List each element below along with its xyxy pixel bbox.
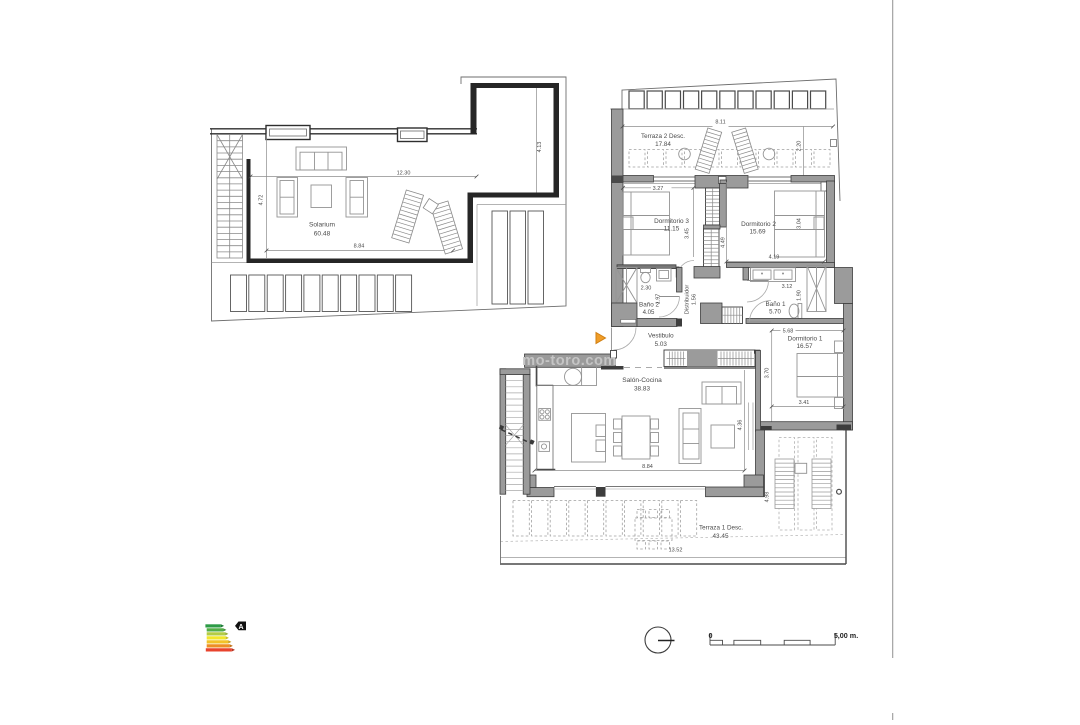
svg-text:5.03: 5.03 [655,341,668,348]
svg-text:15.69: 15.69 [750,229,766,236]
svg-text:5.70: 5.70 [769,309,781,316]
svg-text:mo-toro.com: mo-toro.com [522,353,617,369]
svg-text:38.83: 38.83 [634,386,650,393]
svg-text:1.56: 1.56 [692,293,698,305]
svg-text:Dormitorio 2: Dormitorio 2 [741,221,776,228]
svg-text:3.41: 3.41 [799,400,810,406]
svg-text:16.57: 16.57 [797,343,813,350]
svg-text:4.72: 4.72 [259,195,265,206]
svg-text:13.52: 13.52 [669,548,683,554]
svg-text:4.05: 4.05 [643,309,655,316]
svg-text:Dormitorio 3: Dormitorio 3 [654,218,689,225]
svg-text:3.27: 3.27 [653,186,664,192]
svg-text:1.90: 1.90 [797,290,803,301]
svg-text:Distribuidor: Distribuidor [685,285,691,315]
svg-text:Baño 1: Baño 1 [766,301,786,308]
svg-text:Terraza 2 Desc.: Terraza 2 Desc. [641,133,685,140]
svg-text:4.13: 4.13 [537,142,543,153]
svg-text:A: A [238,624,243,631]
svg-text:3.45: 3.45 [685,228,691,239]
svg-text:4.36: 4.36 [737,420,743,431]
svg-text:4.19: 4.19 [769,255,780,261]
svg-text:8.84: 8.84 [642,464,653,470]
svg-text:8.84: 8.84 [354,244,365,250]
svg-text:8.11: 8.11 [715,120,725,126]
svg-text:60.48: 60.48 [314,231,331,238]
svg-text:Solarium: Solarium [309,222,336,229]
svg-text:Terraza 1 Desc.: Terraza 1 Desc. [699,525,743,532]
svg-text:12.30: 12.30 [397,171,411,177]
svg-text:43.45: 43.45 [713,533,729,540]
svg-text:0: 0 [709,631,713,640]
svg-text:5,00 m.: 5,00 m. [834,631,858,640]
svg-text:3.12: 3.12 [782,284,793,290]
svg-text:3.04: 3.04 [797,218,803,229]
svg-text:Salón-Cocina: Salón-Cocina [622,377,662,384]
svg-text:4.49: 4.49 [721,237,727,248]
svg-text:2.30: 2.30 [641,286,652,292]
svg-text:3.70: 3.70 [764,368,770,379]
svg-text:Dormitorio 1: Dormitorio 1 [788,336,823,343]
svg-text:4.98: 4.98 [765,492,771,503]
svg-text:11.15: 11.15 [664,226,680,233]
svg-text:Vestibulo: Vestibulo [648,333,674,340]
svg-text:2.20: 2.20 [797,141,803,152]
svg-text:Baño 2: Baño 2 [639,302,659,309]
svg-text:5.68: 5.68 [783,329,794,335]
svg-text:17.84: 17.84 [655,141,671,148]
